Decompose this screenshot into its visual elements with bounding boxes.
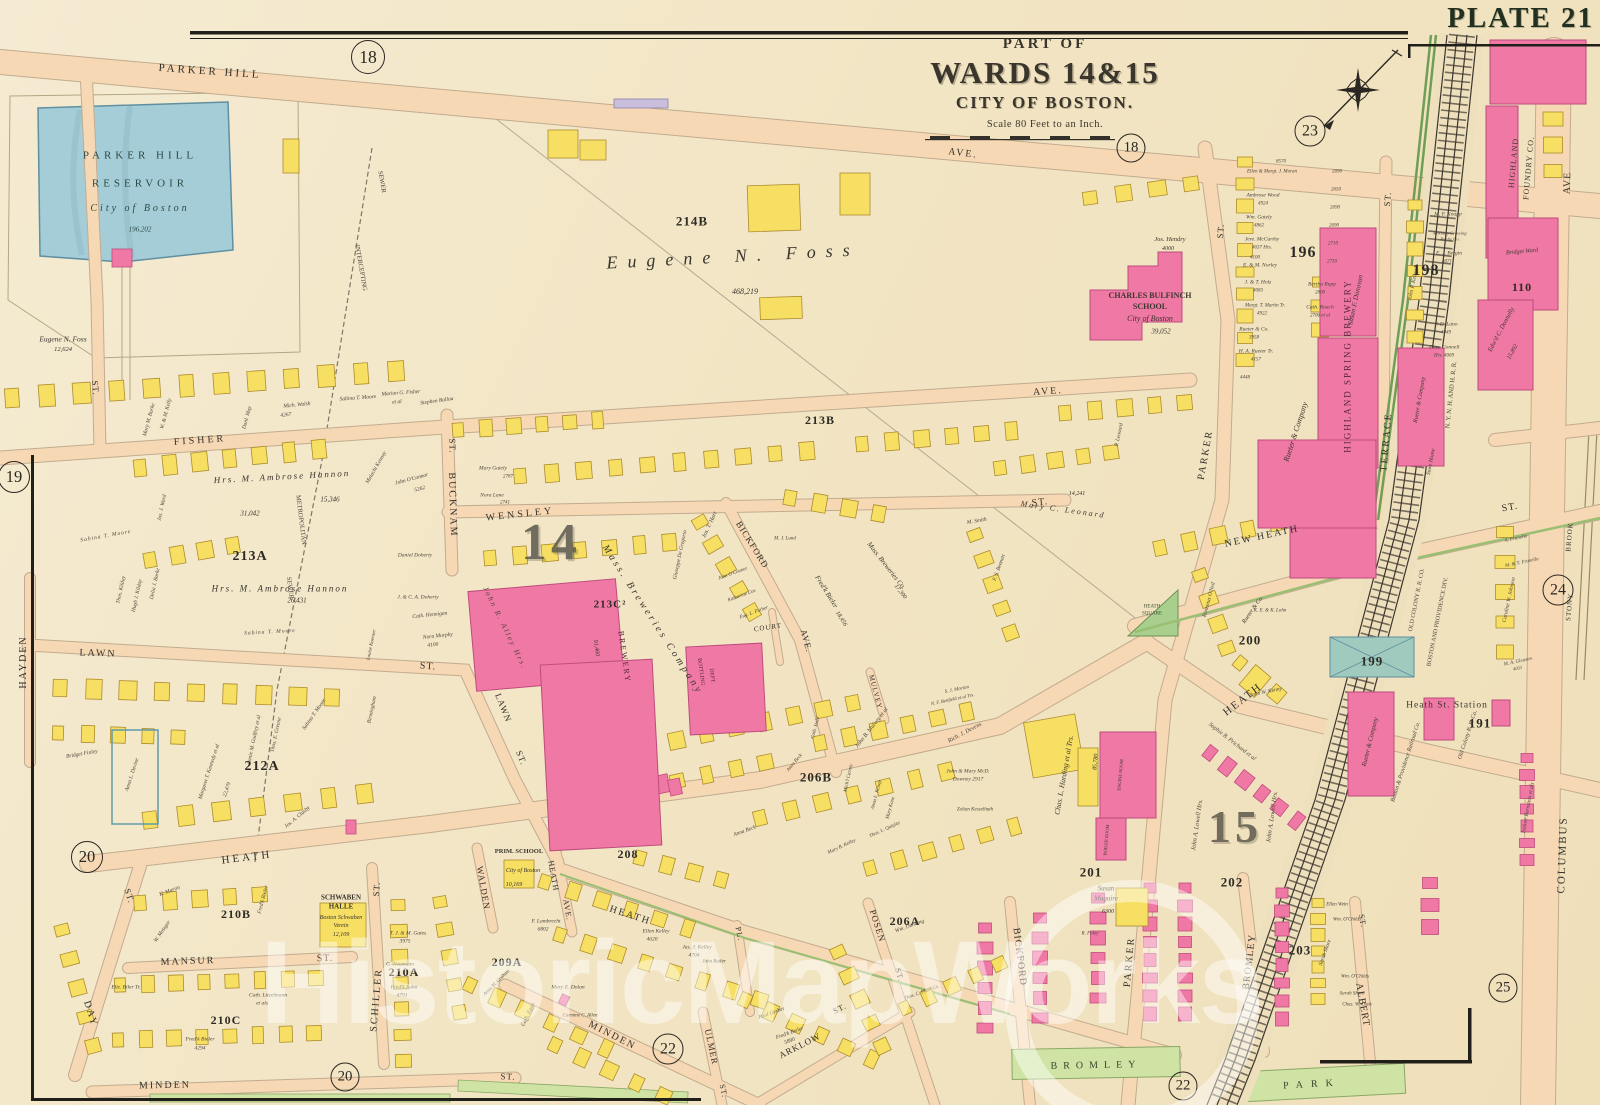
- plate-ref-18: 18: [1117, 134, 1146, 163]
- plate-ref-18: 18: [351, 40, 385, 74]
- title-city: CITY OF BOSTON.: [905, 93, 1185, 113]
- rueter-plant-south: [1348, 692, 1394, 796]
- plate-ref-20: 20: [71, 841, 103, 873]
- atlas-map-sheet: PARKER HILLAVE.AVE.FISHERST.WENSLEYST.ST…: [0, 0, 1600, 1105]
- plate-ref-25: 25: [1489, 974, 1518, 1003]
- charles-bulfinch-school: [1090, 252, 1182, 340]
- plate-ref-24: 24: [1543, 575, 1574, 606]
- plate-ref-23: 23: [1295, 116, 1326, 147]
- title-wards: WARDS 14&15: [905, 55, 1185, 91]
- title-part-of: PART OF: [905, 36, 1185, 53]
- title-scale: Scale 80 Feet to an Inch.: [905, 119, 1185, 130]
- parker-hill-reservoir: [8, 92, 300, 400]
- plate-ref-22: 22: [653, 1034, 684, 1065]
- heath-st-station-buildings: [1424, 698, 1510, 740]
- rueter-store-house: [1398, 348, 1444, 466]
- map-canvas: [0, 0, 1600, 1105]
- plate-ref-20: 20: [331, 1063, 360, 1092]
- title-block: PART OF WARDS 14&15 CITY OF BOSTON. Scal…: [905, 36, 1185, 130]
- plate-ref-22: 22: [1169, 1072, 1198, 1101]
- compass-rose-icon: [1324, 50, 1402, 130]
- plate-number: PLATE 21: [1447, 2, 1594, 35]
